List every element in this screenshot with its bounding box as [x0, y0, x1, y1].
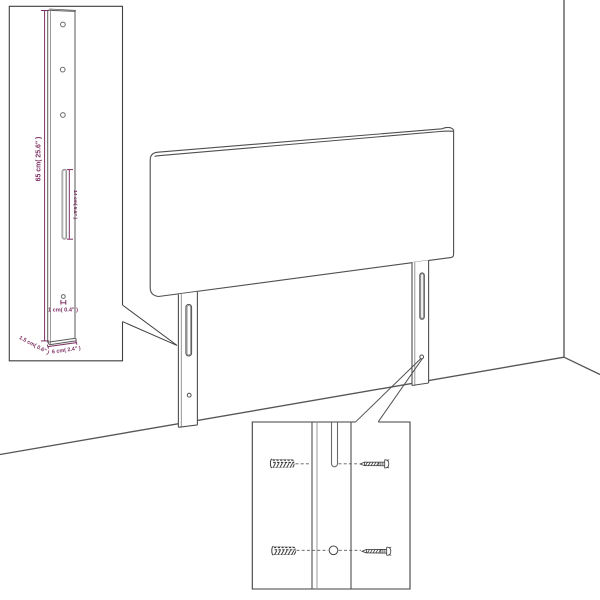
svg-text:1 cm( 0.4" ): 1 cm( 0.4" ) [48, 307, 78, 313]
svg-text:14 cm( 5.5" ): 14 cm( 5.5" ) [72, 190, 78, 219]
svg-text:65 cm( 25.6" ): 65 cm( 25.6" ) [35, 137, 42, 182]
